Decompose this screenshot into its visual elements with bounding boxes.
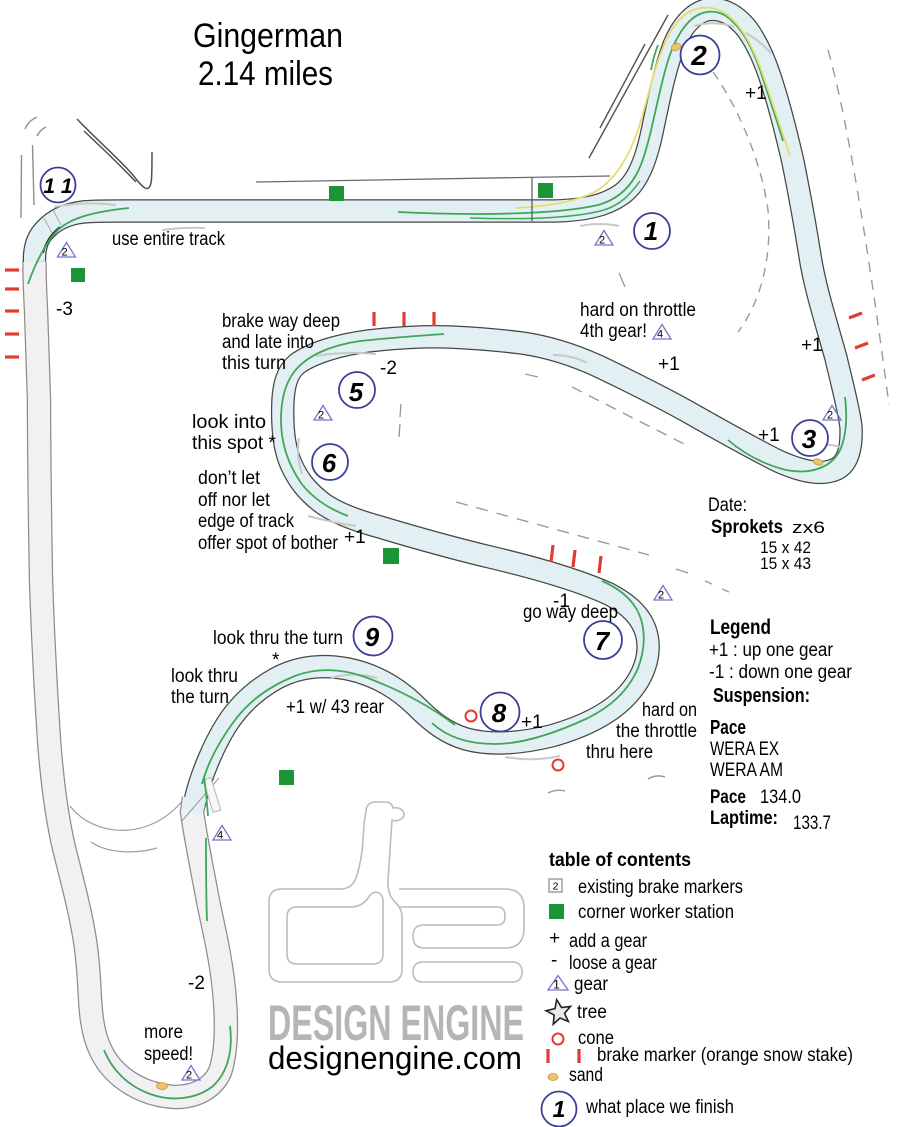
svg-text:Suspension:: Suspension: xyxy=(713,685,810,707)
svg-text:sand: sand xyxy=(569,1065,603,1086)
svg-text:what place we finish: what place we finish xyxy=(585,1097,734,1118)
svg-text:look into: look into xyxy=(192,412,266,433)
svg-text:1: 1 xyxy=(644,216,658,246)
svg-text:thru here: thru here xyxy=(586,742,653,763)
svg-text:4: 4 xyxy=(217,830,223,842)
svg-text:+1: +1 xyxy=(521,712,543,733)
svg-text:Gingerman: Gingerman xyxy=(193,17,343,55)
svg-text:+1 w/ 43 rear: +1 w/ 43 rear xyxy=(286,697,385,718)
svg-text:2: 2 xyxy=(827,410,833,422)
svg-text:-2: -2 xyxy=(380,358,397,379)
svg-text:8: 8 xyxy=(492,698,507,728)
svg-text:hard on throttle: hard on throttle xyxy=(580,300,696,321)
svg-text:-1 : down one gear: -1 : down one gear xyxy=(709,662,853,683)
svg-text:1: 1 xyxy=(553,978,560,992)
svg-text:+1: +1 xyxy=(344,527,366,548)
svg-text:5: 5 xyxy=(349,377,364,407)
svg-text:+1 : up one gear: +1 : up one gear xyxy=(709,640,834,661)
svg-text:2: 2 xyxy=(658,590,664,602)
svg-text:1 1: 1 1 xyxy=(43,175,72,198)
svg-text:table of contents: table of contents xyxy=(549,850,691,871)
svg-text:1: 1 xyxy=(553,1096,566,1122)
svg-text:6: 6 xyxy=(322,448,337,478)
svg-text:134.0: 134.0 xyxy=(760,787,801,808)
svg-text:don’t let: don’t let xyxy=(198,468,261,489)
svg-text:existing brake markers: existing brake markers xyxy=(578,877,743,898)
svg-text:gear: gear xyxy=(574,974,609,995)
svg-text:2.14 miles: 2.14 miles xyxy=(198,55,333,93)
svg-text:4: 4 xyxy=(657,329,663,341)
svg-text:+1: +1 xyxy=(745,83,767,104)
svg-text:Sprokets: Sprokets xyxy=(711,517,783,538)
svg-text:more: more xyxy=(144,1022,183,1043)
svg-text:2: 2 xyxy=(553,881,559,893)
svg-text:-2: -2 xyxy=(188,973,205,994)
svg-text:add a gear: add a gear xyxy=(569,931,648,952)
svg-text:designengine.com: designengine.com xyxy=(268,1040,522,1076)
svg-text:offer spot of bother: offer spot of bother xyxy=(198,533,339,554)
svg-text:Date:: Date: xyxy=(708,495,747,516)
svg-text:7: 7 xyxy=(595,626,611,656)
svg-text:corner worker station: corner worker station xyxy=(578,902,734,923)
svg-text:this spot *: this spot * xyxy=(192,433,277,454)
svg-text:2: 2 xyxy=(318,410,324,422)
svg-text:3: 3 xyxy=(802,424,817,454)
svg-text:look thru: look thru xyxy=(171,666,238,687)
svg-text:+1: +1 xyxy=(658,354,680,375)
svg-text:use entire track: use entire track xyxy=(112,229,225,250)
svg-text:Pace: Pace xyxy=(710,717,746,739)
svg-text:Laptime:: Laptime: xyxy=(710,808,778,829)
svg-text:the turn: the turn xyxy=(171,687,229,708)
svg-text:2: 2 xyxy=(690,40,707,71)
svg-text:the throttle: the throttle xyxy=(616,721,697,742)
svg-text:*: * xyxy=(272,650,280,671)
svg-text:WERA EX: WERA EX xyxy=(710,739,779,760)
svg-text:2: 2 xyxy=(186,1070,192,1082)
svg-text:go way deep: go way deep xyxy=(523,602,618,623)
svg-text:zx6: zx6 xyxy=(792,518,825,537)
svg-text:2: 2 xyxy=(61,247,67,259)
svg-text:off nor let: off nor let xyxy=(198,490,271,511)
svg-text:Pace: Pace xyxy=(710,787,746,808)
svg-text:+1: +1 xyxy=(801,335,823,356)
svg-text:9: 9 xyxy=(365,622,380,652)
svg-text:+: + xyxy=(549,928,560,949)
svg-text:133.7: 133.7 xyxy=(793,813,831,834)
svg-text:-3: -3 xyxy=(56,299,73,320)
svg-text:brake way deep: brake way deep xyxy=(222,311,340,332)
svg-text:-: - xyxy=(551,950,557,971)
svg-text:+1: +1 xyxy=(758,425,780,446)
svg-text:brake marker (orange snow sta: brake marker (orange snow stake) xyxy=(597,1045,853,1066)
svg-text:loose a gear: loose a gear xyxy=(569,953,658,974)
svg-text:WERA AM: WERA AM xyxy=(710,760,783,781)
svg-text:Legend: Legend xyxy=(710,616,771,639)
svg-text:2: 2 xyxy=(599,235,605,247)
svg-text:edge of track: edge of track xyxy=(198,511,294,532)
svg-text:15 x 43: 15 x 43 xyxy=(760,554,811,573)
svg-text:tree: tree xyxy=(577,1002,607,1023)
svg-text:hard on: hard on xyxy=(642,700,697,721)
svg-text:4th gear!: 4th gear! xyxy=(580,321,647,342)
svg-text:and late into: and late into xyxy=(222,332,314,353)
svg-text:this turn: this turn xyxy=(222,353,286,374)
svg-text:speed!: speed! xyxy=(144,1044,193,1065)
svg-text:look thru the turn: look thru the turn xyxy=(213,628,343,649)
